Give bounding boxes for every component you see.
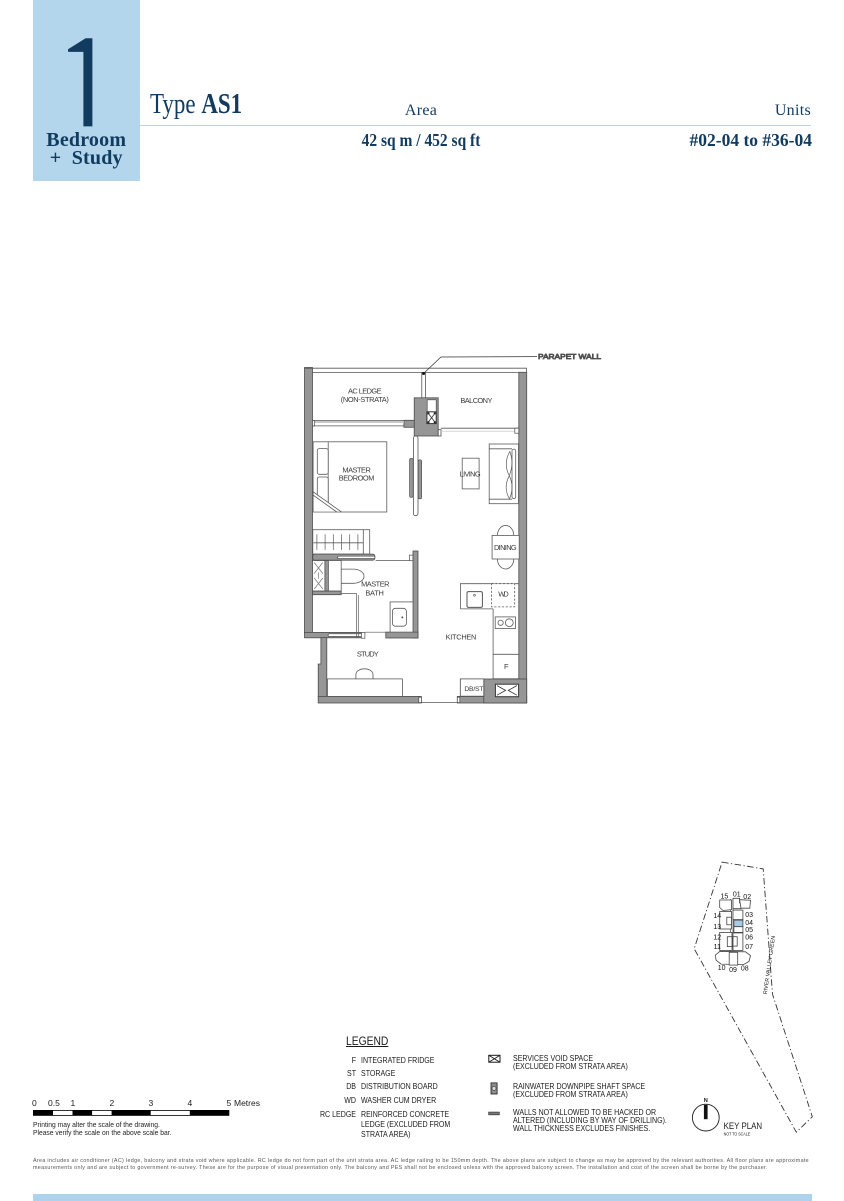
svg-text:01: 01 [733, 892, 741, 899]
svg-text:07: 07 [745, 944, 753, 951]
svg-text:12: 12 [713, 934, 721, 941]
svg-text:09: 09 [729, 967, 737, 974]
svg-text:STUDY: STUDY [357, 650, 379, 659]
svg-text:AC LEDGE: AC LEDGE [348, 386, 382, 395]
svg-text:05: 05 [745, 927, 753, 934]
svg-text:F: F [504, 662, 509, 671]
svg-text:03: 03 [745, 912, 753, 919]
svg-text:WD: WD [498, 590, 509, 599]
svg-text:NOT TO SCALE: NOT TO SCALE [724, 1132, 751, 1137]
svg-text:02: 02 [743, 894, 751, 901]
svg-text:BALCONY: BALCONY [460, 396, 492, 405]
svg-text:RIVER VALLEY GREEN: RIVER VALLEY GREEN [763, 935, 777, 994]
svg-text:DB/ST: DB/ST [464, 686, 483, 693]
svg-text:14: 14 [713, 913, 721, 920]
svg-text:N: N [704, 1098, 708, 1104]
svg-text:15: 15 [721, 894, 729, 901]
svg-text:06: 06 [745, 934, 753, 941]
svg-text:13: 13 [713, 924, 721, 931]
svg-text:08: 08 [741, 966, 749, 973]
svg-text:KEY PLAN: KEY PLAN [724, 1121, 763, 1131]
svg-text:MASTER: MASTER [361, 579, 389, 588]
svg-text:KITCHEN: KITCHEN [446, 633, 477, 642]
svg-text:BATH: BATH [365, 588, 384, 597]
svg-text:BEDROOM: BEDROOM [339, 474, 375, 483]
svg-text:10: 10 [718, 965, 726, 972]
svg-text:PARAPET WALL: PARAPET WALL [538, 352, 601, 361]
svg-text:DINING: DINING [494, 543, 517, 552]
svg-text:(NON-STRATA): (NON-STRATA) [341, 395, 389, 404]
svg-text:11: 11 [714, 944, 721, 951]
svg-text:LIVING: LIVING [460, 469, 481, 478]
